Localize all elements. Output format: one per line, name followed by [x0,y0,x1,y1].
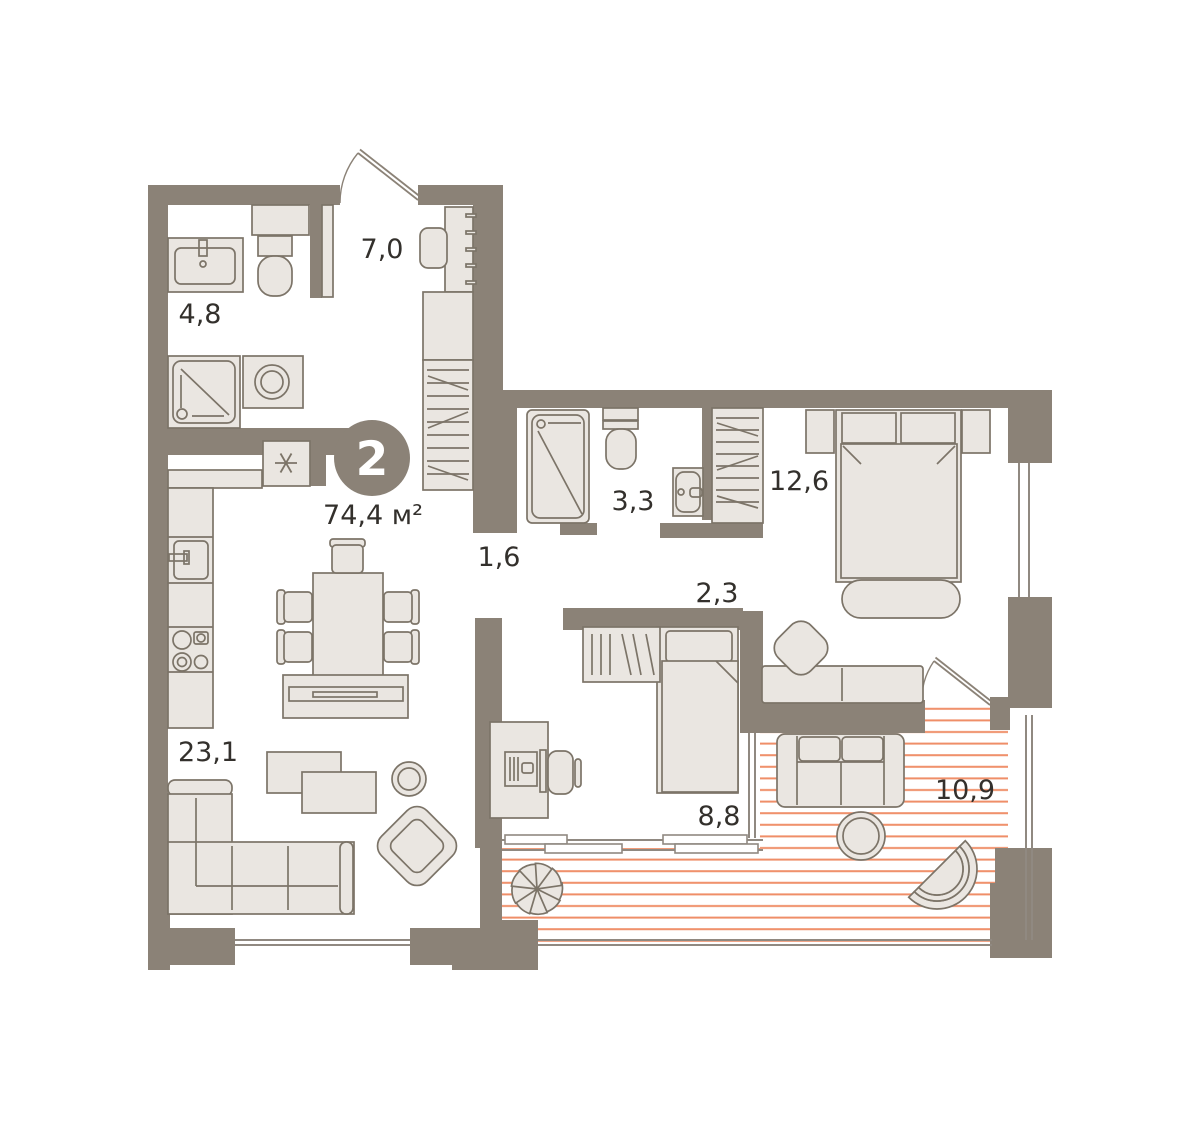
bathroom-door-leaf [322,205,333,297]
desk [490,722,548,818]
wall-se-block [990,883,1052,958]
washing-machine [243,356,303,408]
bathroom-shower [168,356,240,428]
nightstand-right [962,410,990,453]
label-shower-room: 3,3 [612,486,655,517]
double-bed [836,410,961,582]
hallway-cabinet [423,292,473,360]
label-inner-hall: 2,3 [696,578,739,609]
wall-left [148,185,168,970]
fridge [263,441,310,486]
coffee-tables [267,752,376,813]
wall-bathroom-right [310,203,322,298]
hallway-shelf-unit [420,207,476,292]
living-window [235,940,410,945]
label-bathroom: 4,8 [179,299,222,330]
wall-bottom-left-pier [148,928,235,965]
wall-hallway-right [473,185,503,408]
bathroom-vanity-sink [168,238,243,292]
bedroom-banquette [762,666,923,703]
bedroom-wardrobe [712,408,763,523]
label-terrace: 10,9 [935,775,995,806]
total-area-label: 74,4 м² [323,500,423,531]
shower-room-toilet [603,408,638,469]
study-terrace-partition [749,733,755,838]
study-sliding-window [502,835,763,853]
label-corridor: 1,6 [478,542,521,573]
bathroom-toilet [252,205,309,296]
floor-plan: 4,8 7,0 3,3 12,6 1,6 2,3 23,1 8,8 10,9 2… [0,0,1200,1121]
entrance-door [340,150,420,204]
wall-bedroom-terrace [740,700,925,733]
desk-chair [548,751,581,794]
furniture [168,205,994,926]
wall-terrace-left-block [500,920,538,968]
wall-kitchen-pier [310,428,326,486]
wall-right-mid [1008,597,1052,708]
label-study: 8,8 [698,801,741,832]
label-living-kitchen: 23,1 [178,737,238,768]
shower-cabin [527,410,589,523]
kitchen-counter [168,470,262,728]
shower-room-sink [673,468,703,516]
wall-bathroom-bottom [148,428,360,455]
wall-study-bedroom [740,611,763,733]
wall-terrace-left-column [480,840,502,928]
terrace-table [837,812,885,860]
wall-ne-block [1008,390,1052,463]
hallway-wardrobe [423,360,473,490]
bedroom-window [1019,463,1029,597]
wall-top-left [148,185,340,205]
rooms-badge-number: 2 [356,432,389,487]
terrace-sofa [777,734,904,807]
terrace-door [922,658,992,707]
monitor-icon [540,750,546,792]
label-bedroom: 12,6 [769,466,829,497]
label-hallway: 7,0 [361,234,404,265]
bed-bench [842,580,960,618]
single-bed [657,627,738,793]
bookshelf [583,627,660,682]
wall-shower-bottom-right [660,523,763,538]
dining-table [313,573,383,677]
tv-stand [283,675,408,718]
wall-se-step [995,848,1052,888]
wall-corridor-block [473,408,517,533]
armchair [372,801,463,892]
floor-plan-card: 4,8 7,0 3,3 12,6 1,6 2,3 23,1 8,8 10,9 2… [0,0,1200,1121]
wall-top-main [473,390,1008,408]
wall-shower-bottom-left [560,523,597,535]
decor-tray [392,762,426,796]
nightstand-left [806,410,834,453]
wall-balcony-jamb [990,697,1010,730]
